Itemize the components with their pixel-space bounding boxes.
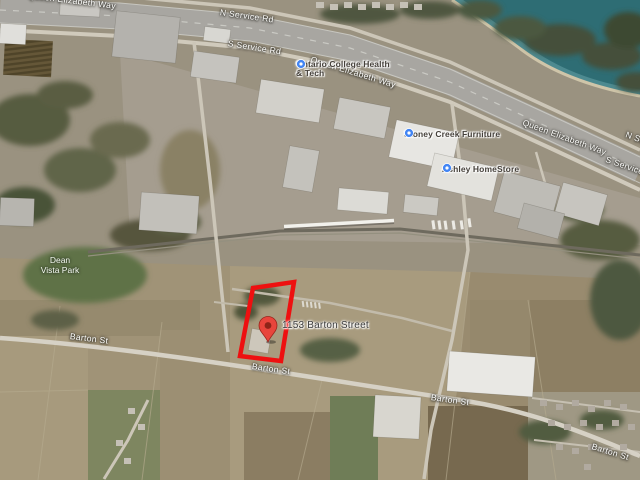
furniture-store-poi-icon[interactable] bbox=[442, 163, 452, 173]
park-label-line2: Vista Park bbox=[18, 266, 102, 276]
satellite-map-viewport[interactable]: Queen Elizabeth Way N Service Rd S Servi… bbox=[0, 0, 640, 480]
poi-stoney-creek-furniture-name: Stoney Creek Furniture bbox=[404, 129, 500, 139]
property-address-label: 1153 Barton Street bbox=[282, 320, 369, 331]
poi-ontario-college-line2: & Tech bbox=[296, 69, 390, 78]
school-poi-icon[interactable] bbox=[296, 59, 306, 69]
poi-ontario-college[interactable]: Ontario College Health & Tech bbox=[296, 60, 390, 78]
poi-stoney-creek-furniture[interactable]: Stoney Creek Furniture bbox=[404, 129, 500, 139]
park-label-dean-vista: Dean Vista Park bbox=[18, 256, 102, 275]
poi-ashley-homestore[interactable]: Ashley HomeStore bbox=[442, 164, 519, 174]
furniture-store-poi-icon[interactable] bbox=[404, 128, 414, 138]
location-pin[interactable] bbox=[259, 317, 277, 343]
poi-ashley-homestore-name: Ashley HomeStore bbox=[442, 164, 519, 174]
location-pin-dot bbox=[265, 322, 272, 329]
